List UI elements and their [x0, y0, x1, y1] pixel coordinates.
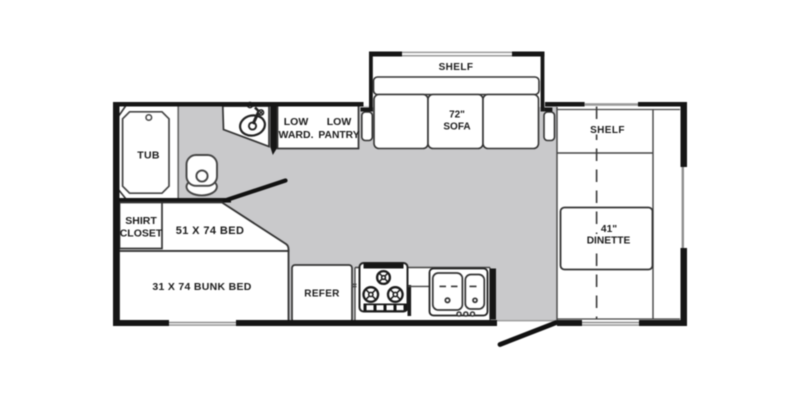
svg-text:LOW: LOW	[284, 116, 309, 128]
svg-text:PANTRY: PANTRY	[318, 130, 359, 141]
svg-text:LOW: LOW	[327, 116, 352, 128]
svg-text:SHELF: SHELF	[439, 62, 474, 73]
svg-text:SHIRT: SHIRT	[125, 215, 157, 227]
svg-text:51 X 74 BED: 51 X 74 BED	[176, 225, 245, 237]
svg-text:41": 41"	[601, 224, 617, 235]
svg-text:DINETTE: DINETTE	[587, 236, 631, 247]
svg-text:WARD.: WARD.	[279, 129, 314, 141]
svg-text:SHELF: SHELF	[590, 125, 625, 136]
svg-text:TUB: TUB	[137, 150, 160, 162]
svg-text:CLOSET: CLOSET	[120, 228, 163, 240]
svg-text:31 X 74 BUNK BED: 31 X 74 BUNK BED	[152, 281, 251, 293]
svg-text:REFER: REFER	[304, 289, 340, 300]
svg-text:SOFA: SOFA	[443, 122, 470, 133]
svg-text:72": 72"	[449, 110, 465, 121]
